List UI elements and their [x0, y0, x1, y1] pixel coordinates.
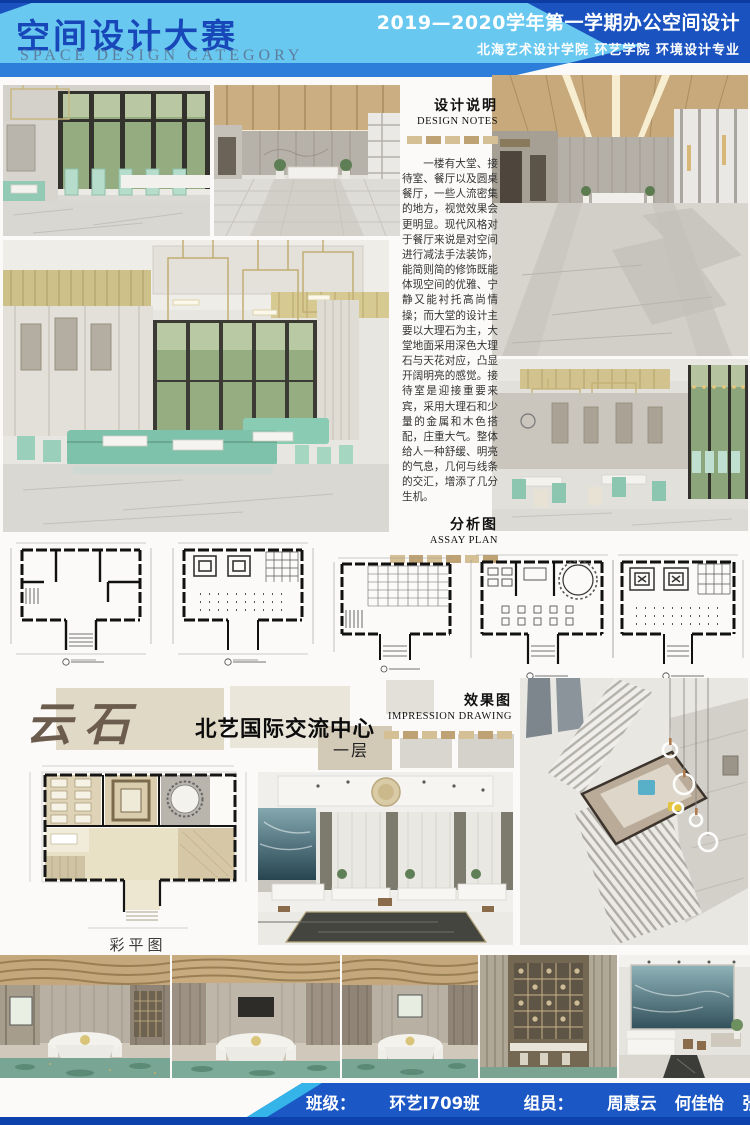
- member-name: 张婕: [742, 1090, 750, 1114]
- render-lounge-artwall: [619, 955, 750, 1078]
- render-restaurant-main: [3, 240, 389, 532]
- impression-subtitle: IMPRESSION DRAWING: [384, 711, 512, 722]
- poster-subtitle: SPACE DESIGN CATEGORY: [20, 47, 303, 65]
- floor-plan-walls: [8, 540, 154, 668]
- impression-title: 效果图: [384, 690, 512, 710]
- member-name: 周惠云: [607, 1090, 657, 1114]
- design-notes-title: 设计说明: [402, 95, 498, 115]
- impression-decor-squares: [384, 731, 512, 739]
- color-plan-caption: 彩平图: [28, 934, 248, 955]
- color-floor-plan: [28, 764, 248, 932]
- member-name: 何佳怡: [675, 1090, 725, 1114]
- design-notes-section: 设计说明 DESIGN NOTES 一楼有大堂、接待室、餐厅以及圆桌餐厅，一些人…: [402, 95, 498, 506]
- design-competition-poster: 空间设计大赛 SPACE DESIGN CATEGORY 2019—2020学年…: [0, 0, 750, 1125]
- floor-plan-grid: [332, 556, 458, 676]
- header-course-info: 2019—2020学年第一学期办公空间设计 北海艺术设计学院 环艺学院 环境设计…: [377, 8, 740, 58]
- render-banquet-1: [0, 955, 170, 1078]
- footer-credits: 班级： 环艺I709班 组员： 周惠云 何佳怡 张婕: [306, 1090, 750, 1114]
- header-top-line: [0, 0, 750, 3]
- design-notes-decor-squares: [402, 136, 498, 144]
- render-lobby-reception: [214, 85, 400, 236]
- render-reception-room: [258, 772, 513, 945]
- decor-block: [458, 734, 514, 768]
- assay-plan-subtitle: ASSAY PLAN: [390, 535, 498, 546]
- render-banquet-3: [342, 955, 478, 1078]
- floor-plan-furniture: [468, 552, 616, 684]
- class-label: 班级：: [306, 1090, 356, 1114]
- footer-bottom-strip: [0, 1117, 750, 1125]
- render-wine-cabinet: [480, 955, 617, 1078]
- members-label: 组员：: [524, 1090, 574, 1114]
- floor-plan-ceiling-2: [610, 552, 746, 684]
- render-banquet-2: [172, 955, 340, 1078]
- term-line: 2019—2020学年第一学期办公空间设计: [377, 8, 740, 35]
- brand-logo: 云石: [26, 688, 142, 754]
- render-restaurant-gold: [492, 359, 748, 531]
- render-staircase: [520, 678, 748, 945]
- design-notes-body: 一楼有大堂、接待室、餐厅以及圆桌餐厅，一些人流密集的地方，视觉效果会更明显。现代…: [402, 157, 498, 506]
- assay-plan-title: 分析图: [390, 514, 498, 534]
- floor-tag: 一层: [333, 737, 369, 761]
- decor-block: [400, 738, 452, 768]
- render-lobby-corridor: [492, 75, 748, 356]
- render-restaurant-window: [3, 85, 210, 236]
- impression-section: 效果图 IMPRESSION DRAWING: [384, 690, 512, 739]
- design-notes-subtitle: DESIGN NOTES: [402, 116, 498, 127]
- header-banner: 空间设计大赛 SPACE DESIGN CATEGORY 2019—2020学年…: [0, 0, 750, 78]
- school-line: 北海艺术设计学院 环艺学院 环境设计专业: [377, 39, 740, 58]
- footer-banner: 班级： 环艺I709班 组员： 周惠云 何佳怡 张婕: [0, 1080, 750, 1125]
- floor-plan-ceiling-1: [170, 540, 316, 668]
- class-value: 环艺I709班: [390, 1090, 480, 1114]
